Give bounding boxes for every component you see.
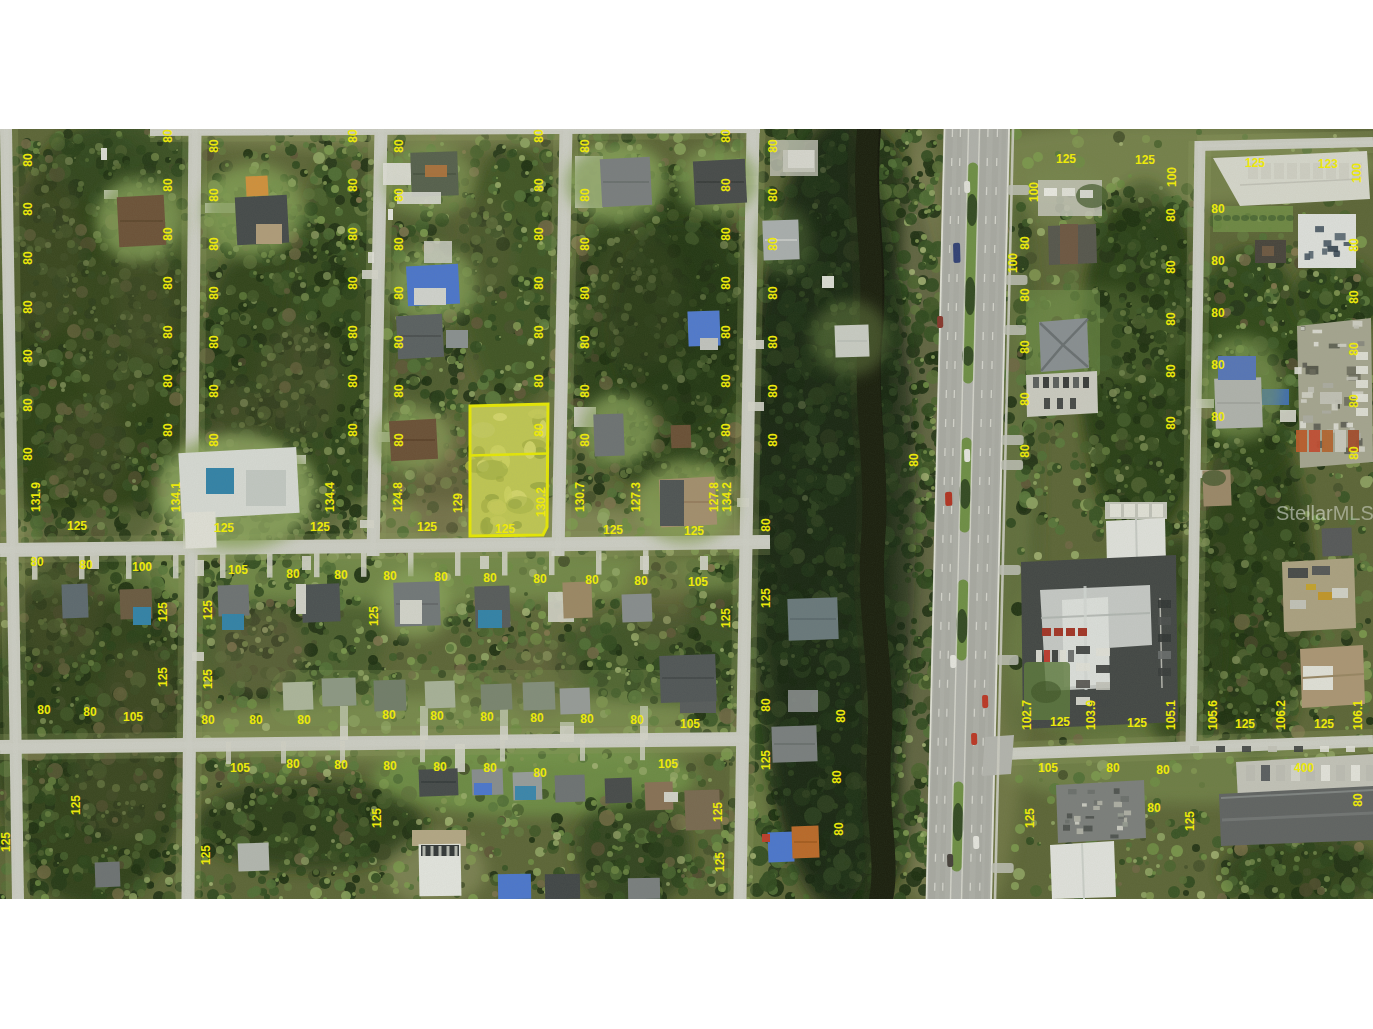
svg-text:125: 125 [711,802,725,822]
svg-text:80: 80 [433,760,447,774]
svg-text:130.7: 130.7 [573,482,587,512]
svg-text:80: 80 [580,712,594,726]
svg-text:106.1: 106.1 [1351,700,1365,730]
svg-text:134.2: 134.2 [720,482,734,512]
svg-text:125: 125 [1023,808,1037,828]
svg-text:80: 80 [532,129,546,143]
svg-text:105: 105 [688,575,708,589]
svg-text:80: 80 [21,251,35,265]
svg-text:125: 125 [1050,715,1070,729]
svg-text:125: 125 [1183,811,1197,831]
svg-text:105: 105 [228,563,248,577]
svg-text:80: 80 [532,325,546,339]
svg-text:80: 80 [1347,238,1361,252]
svg-text:80: 80 [1164,260,1178,274]
svg-text:80: 80 [759,518,773,532]
svg-text:80: 80 [483,761,497,775]
svg-text:80: 80 [1351,793,1365,807]
svg-text:80: 80 [766,286,780,300]
svg-text:80: 80 [83,705,97,719]
svg-text:125: 125 [199,845,213,865]
svg-text:80: 80 [1211,358,1225,372]
svg-text:80: 80 [719,178,733,192]
svg-text:125: 125 [69,795,83,815]
svg-text:80: 80 [530,711,544,725]
svg-text:80: 80 [719,227,733,241]
svg-text:130.2: 130.2 [534,487,548,517]
svg-text:80: 80 [207,335,221,349]
svg-text:125: 125 [1235,717,1255,731]
svg-text:125: 125 [201,600,215,620]
svg-text:125: 125 [0,832,13,852]
svg-text:80: 80 [392,286,406,300]
svg-text:80: 80 [766,237,780,251]
svg-text:80: 80 [207,384,221,398]
svg-text:80: 80 [161,325,175,339]
svg-text:80: 80 [207,237,221,251]
svg-text:80: 80 [392,335,406,349]
svg-text:80: 80 [630,713,644,727]
svg-text:80: 80 [532,276,546,290]
svg-text:105.1: 105.1 [1164,700,1178,730]
svg-text:127.8: 127.8 [707,482,721,512]
svg-text:134.1: 134.1 [169,482,183,512]
svg-text:80: 80 [1147,801,1161,815]
svg-text:105: 105 [680,717,700,731]
svg-text:80: 80 [766,188,780,202]
svg-text:80: 80 [430,709,444,723]
svg-text:80: 80 [1347,446,1361,460]
svg-text:125: 125 [67,519,87,533]
svg-text:80: 80 [392,139,406,153]
svg-text:80: 80 [1211,254,1225,268]
svg-text:80: 80 [161,423,175,437]
svg-text:80: 80 [207,286,221,300]
svg-text:100: 100 [1165,167,1179,187]
svg-text:80: 80 [578,286,592,300]
svg-text:80: 80 [907,453,921,467]
svg-text:125: 125 [603,523,623,537]
svg-text:125: 125 [495,522,515,536]
svg-text:80: 80 [392,237,406,251]
svg-text:80: 80 [161,129,175,143]
svg-text:105.6: 105.6 [1206,700,1220,730]
svg-text:80: 80 [161,276,175,290]
svg-text:80: 80 [207,188,221,202]
svg-text:103.9: 103.9 [1084,700,1098,730]
svg-text:80: 80 [161,227,175,241]
svg-text:80: 80 [533,766,547,780]
svg-text:80: 80 [1164,416,1178,430]
svg-text:80: 80 [286,757,300,771]
svg-text:80: 80 [207,139,221,153]
svg-text:80: 80 [1018,288,1032,302]
svg-text:125: 125 [201,669,215,689]
svg-text:80: 80 [161,374,175,388]
svg-text:80: 80 [383,569,397,583]
svg-text:125: 125 [713,852,727,872]
svg-text:80: 80 [532,227,546,241]
svg-text:80: 80 [766,335,780,349]
svg-text:125: 125 [370,808,384,828]
svg-text:80: 80 [832,822,846,836]
svg-text:80: 80 [830,770,844,784]
svg-text:80: 80 [392,433,406,447]
svg-text:80: 80 [383,759,397,773]
svg-text:80: 80 [346,423,360,437]
svg-text:80: 80 [21,349,35,363]
svg-text:125: 125 [417,520,437,534]
svg-text:400: 400 [1294,761,1314,775]
svg-text:105: 105 [658,757,678,771]
svg-text:100: 100 [1006,253,1020,273]
svg-text:125: 125 [156,602,170,622]
svg-text:123: 123 [1318,157,1338,171]
svg-text:80: 80 [578,139,592,153]
svg-text:134.4: 134.4 [323,482,337,512]
svg-text:80: 80 [30,555,44,569]
svg-text:80: 80 [578,237,592,251]
svg-text:80: 80 [578,384,592,398]
svg-text:StellarMLS: StellarMLS [1276,502,1373,524]
svg-text:80: 80 [719,276,733,290]
svg-text:80: 80 [766,433,780,447]
svg-text:80: 80 [434,570,448,584]
svg-text:80: 80 [1018,236,1032,250]
svg-text:80: 80 [532,178,546,192]
svg-text:80: 80 [766,384,780,398]
svg-text:80: 80 [382,708,396,722]
svg-text:80: 80 [532,374,546,388]
svg-text:80: 80 [834,709,848,723]
svg-text:80: 80 [161,178,175,192]
svg-text:80: 80 [719,129,733,143]
svg-text:80: 80 [346,374,360,388]
svg-text:80: 80 [578,188,592,202]
svg-text:80: 80 [1164,208,1178,222]
svg-text:100: 100 [1027,182,1041,202]
svg-text:80: 80 [719,423,733,437]
svg-text:125: 125 [759,588,773,608]
svg-text:80: 80 [392,188,406,202]
svg-text:80: 80 [1211,410,1225,424]
svg-text:80: 80 [346,227,360,241]
svg-text:102.7: 102.7 [1020,700,1034,730]
svg-text:105: 105 [230,761,250,775]
svg-text:80: 80 [1106,761,1120,775]
svg-text:80: 80 [346,129,360,143]
svg-text:80: 80 [21,398,35,412]
svg-text:125: 125 [684,524,704,538]
svg-text:80: 80 [719,325,733,339]
svg-text:80: 80 [79,558,93,572]
svg-text:80: 80 [249,713,263,727]
svg-text:80: 80 [334,568,348,582]
svg-text:80: 80 [634,574,648,588]
svg-text:80: 80 [480,710,494,724]
svg-text:125: 125 [1314,717,1334,731]
svg-text:80: 80 [334,758,348,772]
svg-text:80: 80 [21,202,35,216]
svg-text:80: 80 [286,567,300,581]
svg-text:125: 125 [719,608,733,628]
svg-text:80: 80 [585,573,599,587]
svg-text:80: 80 [37,703,51,717]
svg-text:80: 80 [1347,290,1361,304]
svg-text:80: 80 [1156,763,1170,777]
svg-text:131.9: 131.9 [29,482,43,512]
svg-text:80: 80 [1018,340,1032,354]
svg-text:105: 105 [1038,761,1058,775]
svg-text:125: 125 [759,750,773,770]
svg-text:125: 125 [1245,156,1265,170]
svg-text:80: 80 [1018,392,1032,406]
svg-text:124.8: 124.8 [391,482,405,512]
svg-text:80: 80 [719,374,733,388]
svg-text:100: 100 [1350,163,1364,183]
svg-text:80: 80 [766,139,780,153]
svg-text:80: 80 [1347,342,1361,356]
svg-text:105: 105 [123,710,143,724]
svg-text:80: 80 [533,572,547,586]
svg-text:106.2: 106.2 [1274,700,1288,730]
svg-text:80: 80 [346,276,360,290]
svg-text:80: 80 [532,423,546,437]
svg-text:125: 125 [1127,716,1147,730]
svg-text:80: 80 [1164,364,1178,378]
svg-text:80: 80 [1164,312,1178,326]
svg-text:125: 125 [156,667,170,687]
svg-text:80: 80 [297,713,311,727]
svg-text:80: 80 [21,153,35,167]
svg-text:80: 80 [207,433,221,447]
svg-text:127.3: 127.3 [629,482,643,512]
svg-text:80: 80 [346,178,360,192]
svg-text:80: 80 [1211,202,1225,216]
svg-text:125: 125 [367,606,381,626]
svg-text:80: 80 [21,300,35,314]
svg-text:80: 80 [201,713,215,727]
svg-text:80: 80 [483,571,497,585]
svg-text:80: 80 [21,447,35,461]
svg-text:80: 80 [1347,394,1361,408]
svg-text:80: 80 [578,335,592,349]
svg-text:125: 125 [214,521,234,535]
svg-text:80: 80 [1018,444,1032,458]
svg-text:80: 80 [759,698,773,712]
svg-text:80: 80 [578,433,592,447]
svg-text:80: 80 [392,384,406,398]
svg-text:100: 100 [132,560,152,574]
svg-text:125: 125 [310,520,330,534]
svg-text:125: 125 [1135,153,1155,167]
svg-text:80: 80 [1211,306,1225,320]
svg-text:129: 129 [451,493,465,513]
svg-text:80: 80 [346,325,360,339]
svg-text:125: 125 [1056,152,1076,166]
